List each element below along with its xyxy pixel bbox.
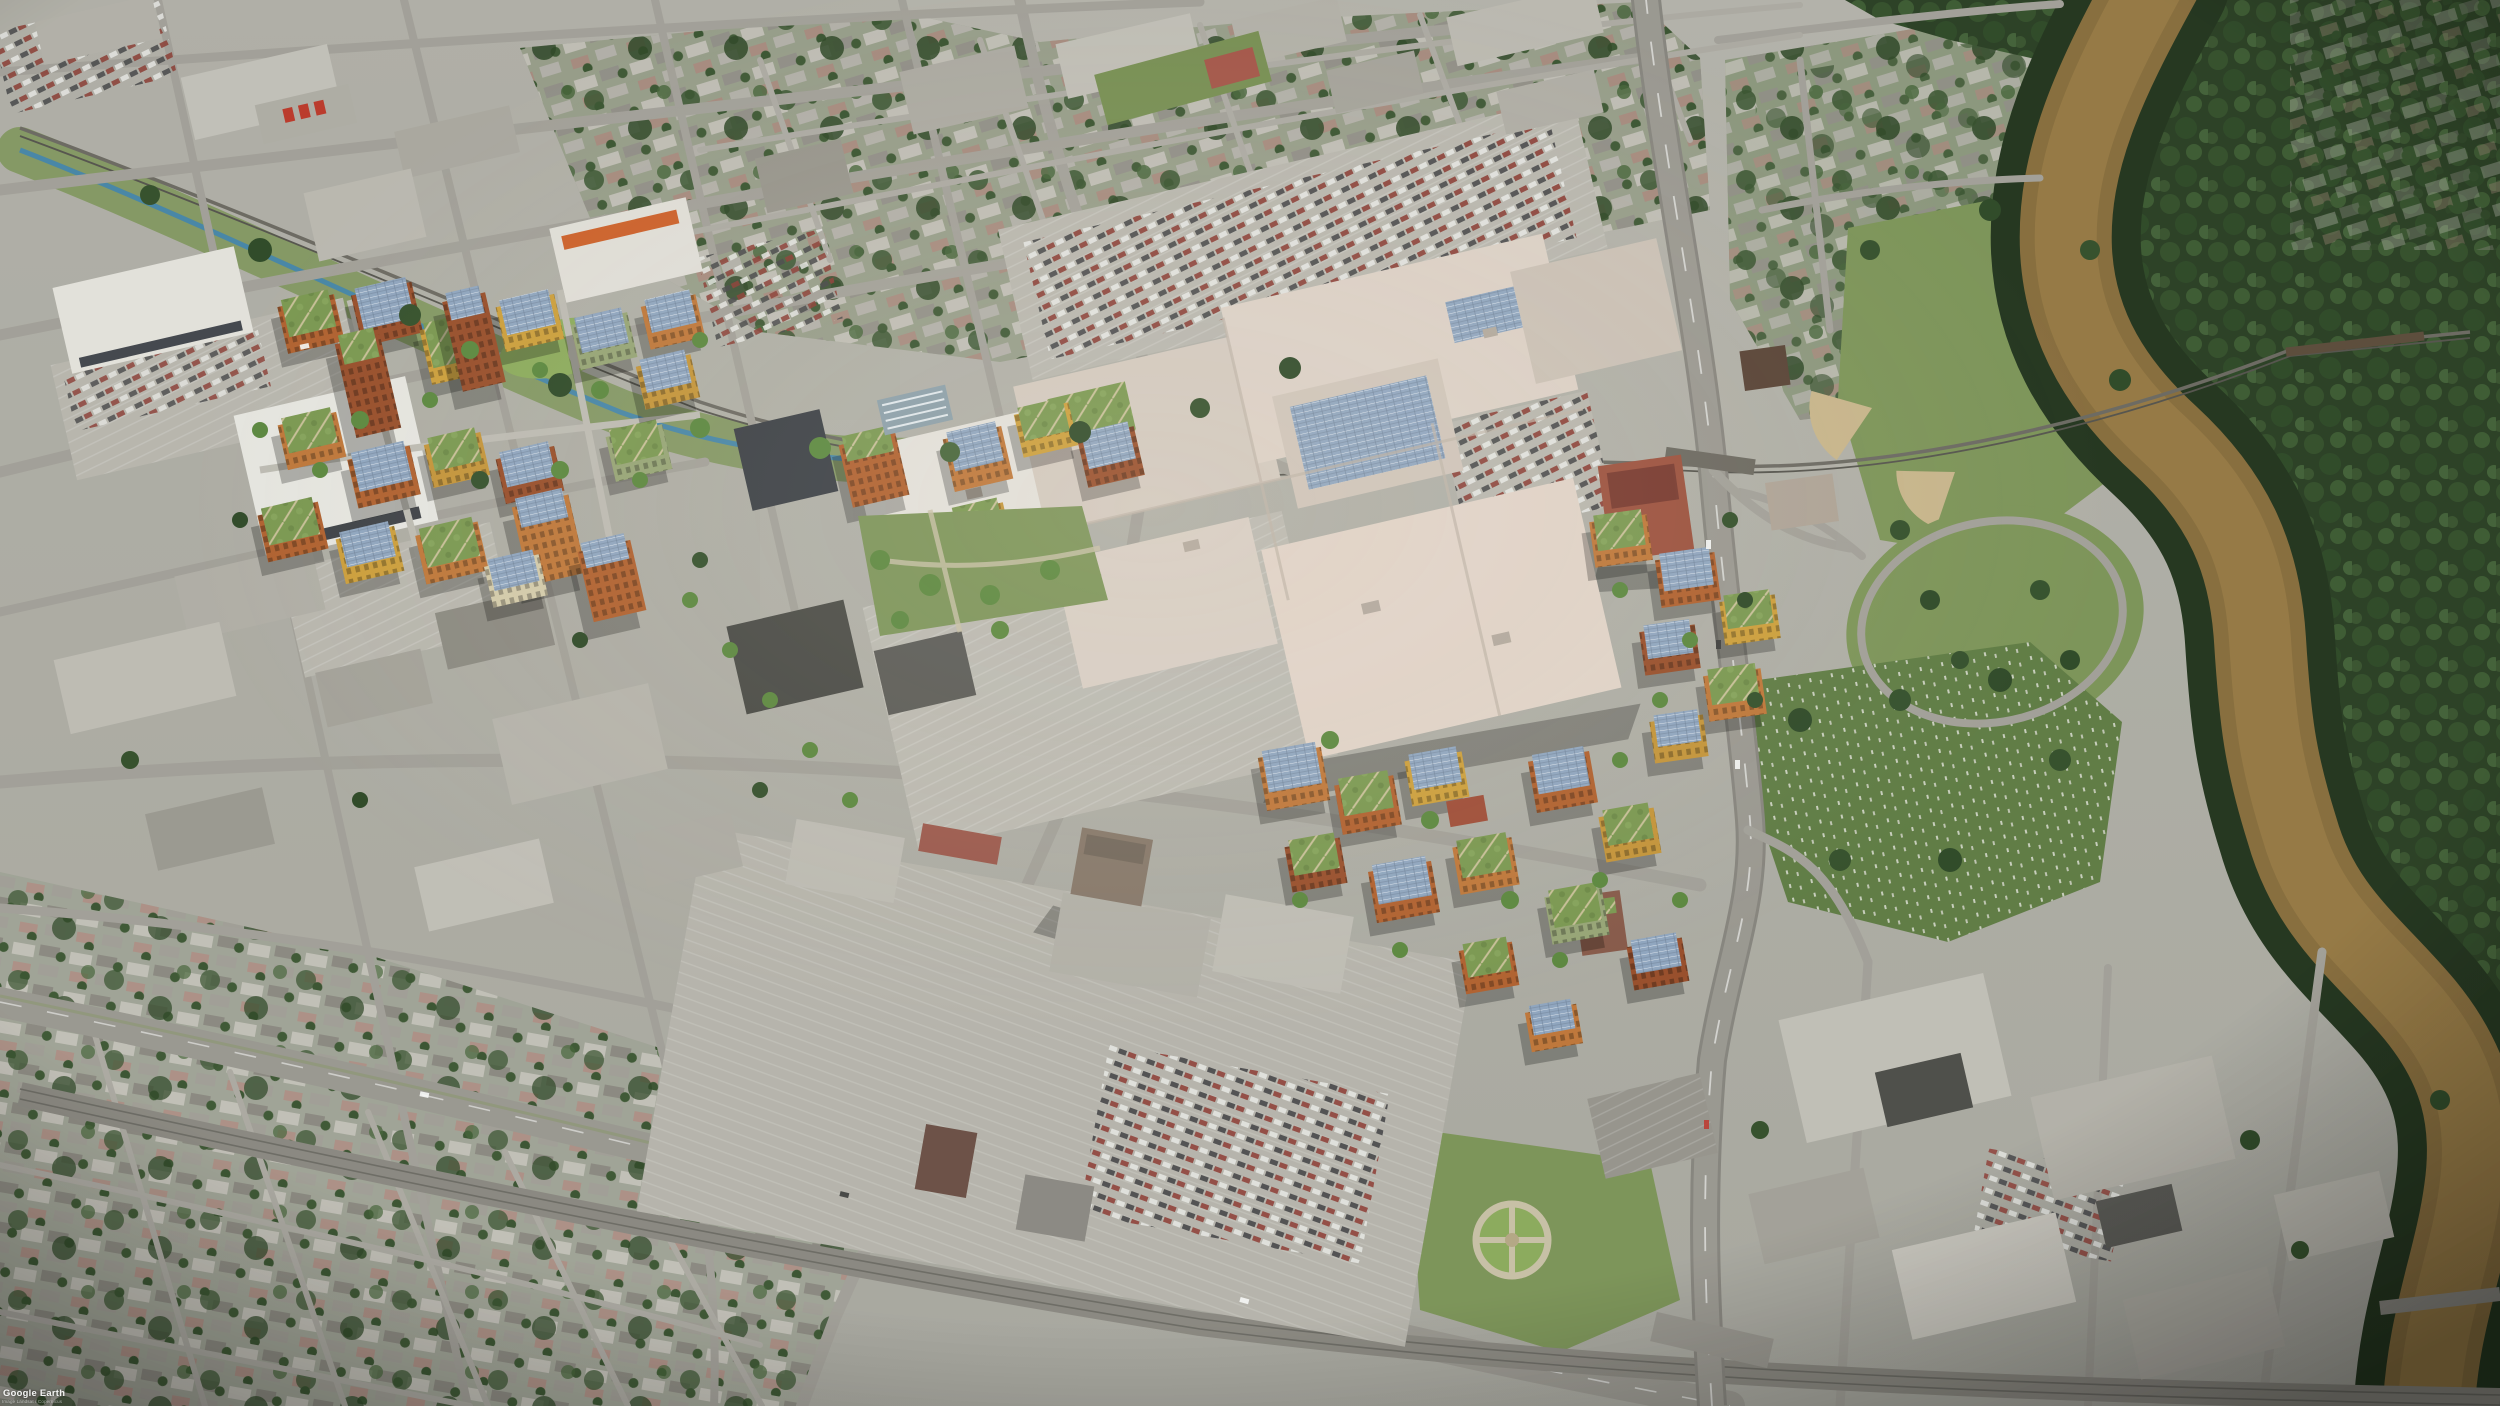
imagery-attribution: Image Landsat / Copernicus: [2, 1399, 62, 1404]
vignette-overlay: [0, 0, 2500, 1406]
aerial-photo-canvas: [0, 0, 2500, 1406]
google-earth-watermark: Google Earth: [3, 1387, 65, 1398]
aerial-screenshot: Google Earth Image Landsat / Copernicus: [0, 0, 2500, 1406]
